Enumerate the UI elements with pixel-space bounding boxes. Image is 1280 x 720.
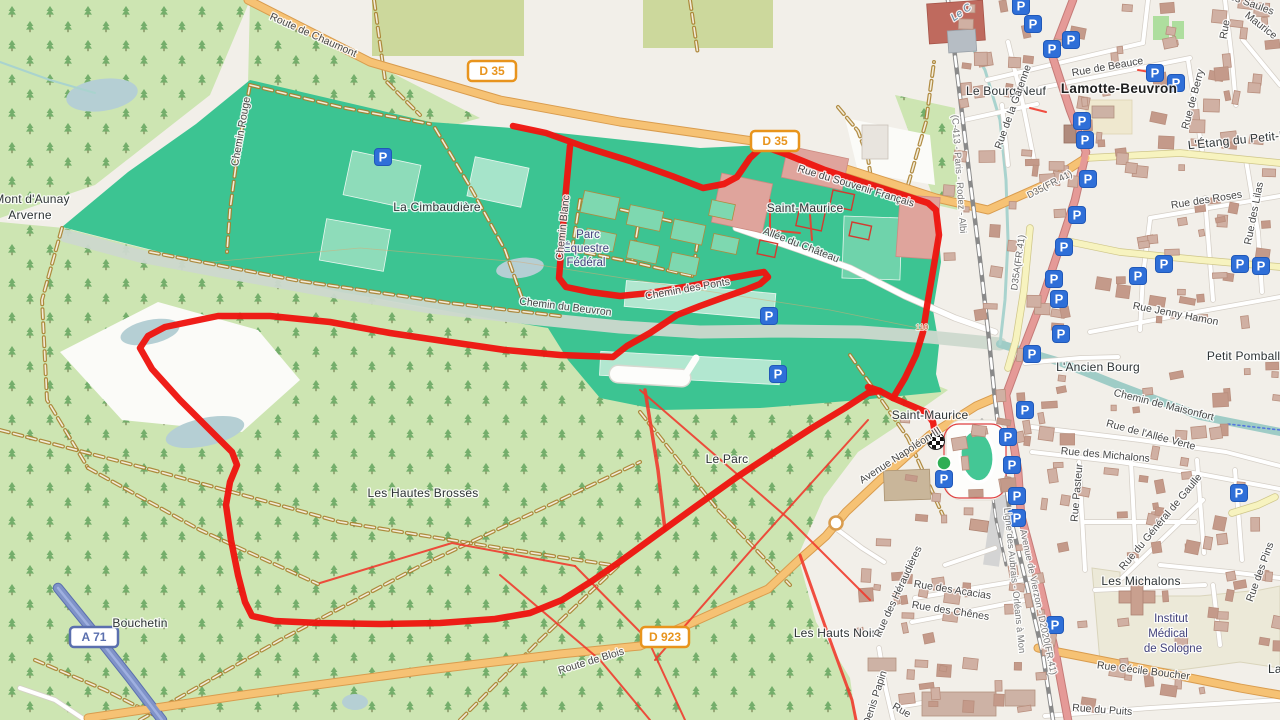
parking-icon: P <box>1056 239 1073 256</box>
building <box>1038 426 1054 441</box>
parking-glyph: P <box>1029 17 1038 32</box>
label-le-bourg-neuf: Le Bourg Neuf <box>966 84 1046 98</box>
building <box>1185 540 1201 555</box>
building <box>995 681 1002 692</box>
building <box>974 52 987 65</box>
parking-icon: P <box>761 308 778 325</box>
building <box>1095 277 1111 291</box>
building <box>861 569 871 583</box>
parking-icon: P <box>770 366 787 383</box>
parking-glyph: P <box>1084 172 1093 187</box>
building <box>996 389 1006 402</box>
label-les-hautes-brosses: Les Hautes Brosses <box>368 486 479 500</box>
building <box>1009 201 1016 209</box>
parking-glyph: P <box>379 150 388 165</box>
building <box>1209 427 1222 440</box>
building <box>1162 591 1168 602</box>
label-bouchetin: Bouchetin <box>112 616 167 630</box>
building <box>990 266 1003 278</box>
parking-glyph: P <box>1028 347 1037 362</box>
building <box>929 702 938 707</box>
building <box>1166 26 1176 35</box>
label-institut-l1: Institut <box>1154 613 1189 625</box>
label-parc-equestre-l1: Parc <box>576 229 600 241</box>
building <box>1116 284 1131 298</box>
parking-glyph: P <box>940 472 949 487</box>
parking-icon: P <box>1013 0 1030 15</box>
building <box>1014 662 1021 670</box>
label-petit-pomballe: Petit Pomballe <box>1207 349 1280 363</box>
building <box>1214 67 1229 81</box>
building <box>1058 375 1066 382</box>
map-viewport[interactable]: P P P P P P P P P P P P P P P P P P P P … <box>0 0 1280 720</box>
label-le-parc: Le Parc <box>706 452 749 466</box>
building <box>1251 518 1260 532</box>
parking-icon: P <box>1044 41 1061 58</box>
label-mont-daunay-l1: Mont d'Aunay <box>0 192 70 206</box>
building <box>1225 589 1234 601</box>
parking-glyph: P <box>1057 327 1066 342</box>
road-shield: D 35 <box>468 61 516 81</box>
label-les-hauts-noirs: Les Hauts Noirs <box>794 626 882 640</box>
parking-icon: P <box>936 471 953 488</box>
building <box>902 613 914 619</box>
building <box>1273 641 1280 652</box>
label-saint-maurice-town: Saint-Maurice <box>892 408 969 422</box>
building <box>962 657 978 670</box>
building <box>1041 498 1048 510</box>
building <box>1027 295 1041 307</box>
building <box>947 29 976 53</box>
parking-icon: P <box>1017 402 1034 419</box>
building <box>1139 475 1148 482</box>
building <box>1261 221 1270 229</box>
building <box>1259 637 1270 646</box>
building <box>1047 468 1058 483</box>
road-ref: D 35 <box>762 134 788 148</box>
building <box>1160 684 1177 697</box>
parking-icon: P <box>1000 429 1017 446</box>
road-shield: D 923 <box>641 627 689 647</box>
building <box>983 303 997 309</box>
building <box>1177 289 1185 295</box>
building <box>1272 394 1280 401</box>
building <box>979 151 995 163</box>
parking-icon: P <box>1147 65 1164 82</box>
building <box>1060 434 1074 445</box>
parking-icon: P <box>1156 256 1173 273</box>
building <box>971 425 986 437</box>
building <box>1158 136 1174 149</box>
building <box>915 660 928 668</box>
building <box>961 456 969 470</box>
building <box>939 665 947 672</box>
building <box>1151 541 1162 553</box>
building <box>1203 99 1219 112</box>
building <box>883 469 930 501</box>
road-ref: D 923 <box>649 630 681 644</box>
building <box>1036 672 1047 680</box>
building <box>1162 36 1177 49</box>
building <box>1244 369 1250 375</box>
parking-icon: P <box>1232 256 1249 273</box>
building <box>1133 407 1140 413</box>
building <box>951 436 968 451</box>
building <box>1005 690 1035 706</box>
map-canvas[interactable]: P P P P P P P P P P P P P P P P P P P P … <box>0 0 1280 720</box>
building <box>876 539 891 546</box>
label-mont-daunay-l2: Arverne <box>8 208 52 222</box>
parking-icon: P <box>1024 346 1041 363</box>
building <box>862 125 888 159</box>
parking-glyph: P <box>1151 66 1160 81</box>
building <box>1049 162 1064 171</box>
parking-glyph: P <box>1067 33 1076 48</box>
building <box>1017 393 1025 401</box>
label-lamotte-beuvron: Lamotte-Beuvron <box>1061 81 1177 96</box>
building <box>969 489 984 497</box>
road-shield: A 71 <box>70 627 118 647</box>
building <box>1016 348 1024 362</box>
building <box>1240 27 1248 39</box>
parking-icon: P <box>1253 258 1270 275</box>
roundabout <box>830 517 843 530</box>
parking-icon: P <box>1004 457 1021 474</box>
building <box>931 687 941 699</box>
building <box>923 632 935 643</box>
building <box>1212 393 1228 408</box>
parking-glyph: P <box>774 367 783 382</box>
building <box>1056 386 1066 394</box>
building <box>1008 57 1020 68</box>
building <box>874 584 881 590</box>
parking-icon: P <box>1077 132 1094 149</box>
orchard-area <box>643 0 773 48</box>
building <box>1165 249 1180 256</box>
building <box>1024 436 1031 446</box>
parking-glyph: P <box>765 309 774 324</box>
parking-icon: P <box>1009 488 1026 505</box>
parking-glyph: P <box>1013 489 1022 504</box>
parking-glyph: P <box>1078 114 1087 129</box>
parking-glyph: P <box>1235 486 1244 501</box>
building <box>1060 495 1070 506</box>
building <box>1104 468 1119 476</box>
building <box>1233 580 1246 590</box>
building <box>944 253 955 261</box>
parking-glyph: P <box>1021 403 1030 418</box>
building <box>1248 82 1261 93</box>
building <box>989 224 1000 237</box>
label-les-michalons: Les Michalons <box>1101 574 1180 588</box>
building <box>969 519 988 532</box>
building <box>1111 405 1116 411</box>
building <box>915 514 927 521</box>
building <box>1203 536 1213 549</box>
parking-glyph: P <box>1236 257 1245 272</box>
label-la-frag: La G <box>1268 662 1280 676</box>
parking-icon: P <box>1063 32 1080 49</box>
parking-icon: P <box>1051 291 1068 308</box>
building <box>907 670 915 680</box>
building <box>1266 362 1279 370</box>
parking-icon: P <box>1231 485 1248 502</box>
parking-icon: P <box>1080 171 1097 188</box>
building <box>868 658 896 671</box>
building <box>1213 516 1227 532</box>
parking-icon: P <box>1130 268 1147 285</box>
building <box>1117 618 1129 627</box>
building <box>1117 512 1127 518</box>
parking-glyph: P <box>1051 618 1060 633</box>
building <box>1160 2 1175 13</box>
parking-glyph: P <box>1008 458 1017 473</box>
building <box>1125 675 1132 681</box>
building <box>1125 162 1138 174</box>
building <box>1191 426 1207 439</box>
building <box>1116 277 1125 284</box>
parking-glyph: P <box>1017 0 1026 14</box>
building <box>1057 542 1069 552</box>
parking-glyph: P <box>1081 133 1090 148</box>
building <box>1226 571 1236 581</box>
building <box>1054 209 1066 218</box>
building <box>1241 316 1250 329</box>
label-parc-equestre-l3: Fédéral <box>567 257 606 269</box>
parking-icon: P <box>1046 271 1063 288</box>
building <box>994 694 1004 706</box>
building <box>962 63 971 70</box>
building <box>1199 687 1205 694</box>
building <box>1032 165 1038 176</box>
building <box>1177 217 1187 226</box>
label-institut-l3: de Sologne <box>1144 643 1202 655</box>
building <box>999 0 1008 12</box>
building <box>1081 97 1087 106</box>
parking-glyph: P <box>1004 430 1013 445</box>
building <box>932 493 941 502</box>
parking-icon: P <box>1074 113 1091 130</box>
label-contour110: 110 <box>916 323 929 332</box>
building <box>1262 169 1275 177</box>
parking-icon: P <box>1053 326 1070 343</box>
road-shield: D 35 <box>751 131 799 151</box>
parking-glyph: P <box>1060 240 1069 255</box>
building <box>974 309 987 321</box>
parking-glyph: P <box>1134 269 1143 284</box>
building <box>1022 150 1032 157</box>
parking-icon: P <box>375 149 392 166</box>
building <box>1138 241 1150 249</box>
building <box>1212 272 1227 278</box>
label-parc-equestre-l2: Équestre <box>563 242 609 255</box>
building <box>1053 462 1063 468</box>
building <box>905 474 917 481</box>
building <box>1122 4 1133 12</box>
parking-glyph: P <box>1050 272 1059 287</box>
building <box>1214 621 1228 631</box>
building <box>963 700 975 712</box>
building <box>1228 202 1239 214</box>
building <box>964 508 973 515</box>
building <box>1023 55 1034 63</box>
building <box>958 19 973 29</box>
start-marker-icon <box>937 456 951 470</box>
building <box>1216 533 1227 545</box>
building <box>943 185 955 197</box>
parking-glyph: P <box>1055 292 1064 307</box>
building <box>1025 159 1039 166</box>
parking-icon: P <box>1069 207 1086 224</box>
building <box>1180 457 1189 466</box>
building <box>1041 401 1057 409</box>
lake <box>342 694 368 710</box>
label-lancien-bourg: L'Ancien Bourg <box>1056 360 1140 374</box>
label-institut-l2: Médical <box>1148 628 1188 640</box>
parking-glyph: P <box>1160 257 1169 272</box>
building <box>1272 372 1279 378</box>
building <box>941 515 946 523</box>
road-ref: D 35 <box>479 64 505 78</box>
building <box>1078 621 1088 628</box>
building <box>1197 294 1205 302</box>
parking-icon: P <box>1025 16 1042 33</box>
label-saint-maurice-park: Saint-Maurice <box>767 201 844 215</box>
building <box>1208 607 1219 618</box>
building <box>1265 572 1272 582</box>
parking-glyph: P <box>1073 208 1082 223</box>
building <box>1098 140 1105 147</box>
parking-glyph: P <box>1257 259 1266 274</box>
parking-glyph: P <box>1048 42 1057 57</box>
building <box>1179 165 1185 171</box>
building <box>1092 106 1114 118</box>
label-la-cimbaudiere: La Cimbaudière <box>393 200 481 214</box>
orchard-area <box>372 0 524 56</box>
building <box>959 98 969 108</box>
road-ref: A 71 <box>82 630 107 644</box>
building <box>1222 54 1231 68</box>
building <box>1198 229 1204 236</box>
